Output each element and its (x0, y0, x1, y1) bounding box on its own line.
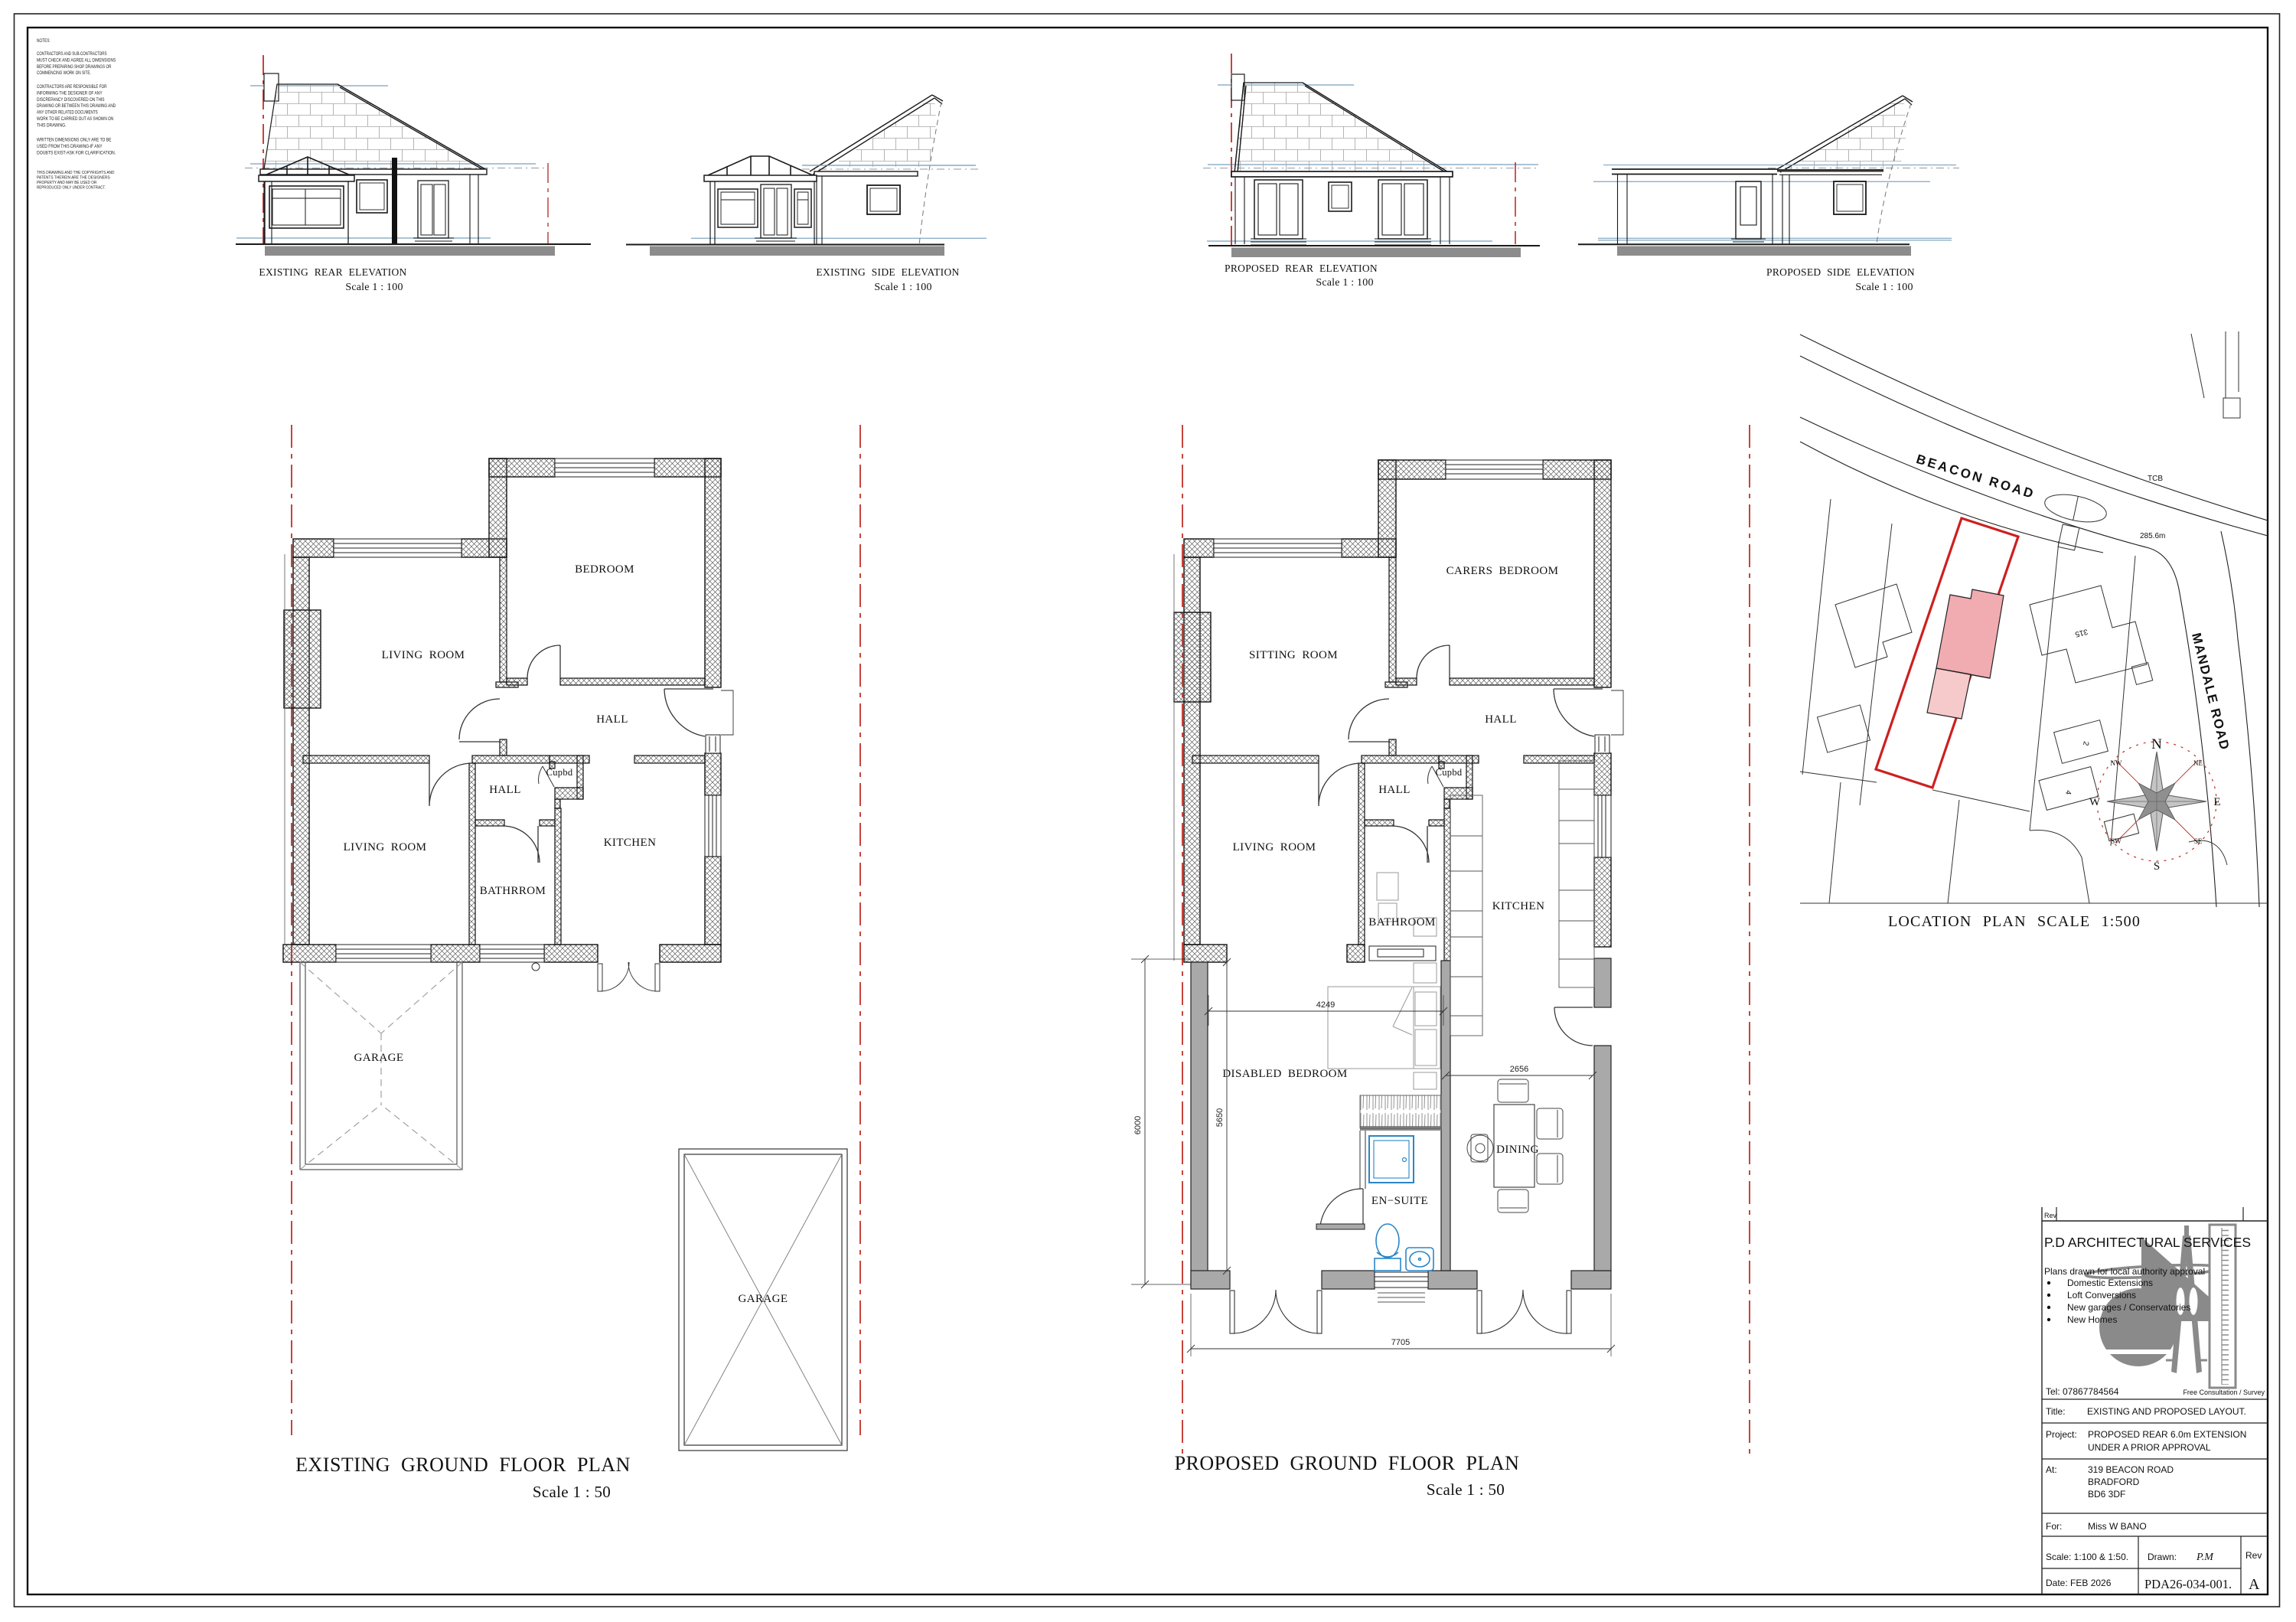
svg-text:Tel: 07867784564: Tel: 07867784564 (2046, 1386, 2119, 1397)
svg-text:PROPERTY AND MAY BE USED OR: PROPERTY AND MAY BE USED OR (37, 181, 97, 185)
svg-text:WORK TO BE CARRIED OUT AS SHOW: WORK TO BE CARRIED OUT AS SHOWN ON (37, 116, 113, 122)
svg-text:4249: 4249 (1316, 1000, 1335, 1010)
svg-text:Project:: Project: (2046, 1429, 2077, 1440)
svg-text:Date: FEB 2026: Date: FEB 2026 (2046, 1578, 2112, 1588)
svg-text:DINING: DINING (1496, 1144, 1539, 1156)
svg-text:Domestic Extensions: Domestic Extensions (2067, 1278, 2153, 1288)
svg-text:2656: 2656 (1510, 1065, 1528, 1074)
svg-text:THIS DRAWING AND THE COPYRIGHT: THIS DRAWING AND THE COPYRIGHTS AND (37, 171, 115, 175)
svg-text:DISABLED BEDROOM: DISABLED BEDROOM (1222, 1068, 1347, 1080)
svg-text:COMMENCING WORK ON SITE.: COMMENCING WORK ON SITE. (37, 70, 91, 76)
svg-text:HALL: HALL (596, 713, 628, 726)
svg-text:W: W (2089, 796, 2101, 808)
svg-text:BEFORE PREPARING SHOP DRAWINGS: BEFORE PREPARING SHOP DRAWINGS OR (37, 64, 112, 70)
svg-text:PROPOSED GROUND FLOOR PLAN: PROPOSED GROUND FLOOR PLAN (1175, 1452, 1520, 1474)
svg-text:EXISTING SIDE ELEVATION: EXISTING SIDE ELEVATION (816, 266, 959, 278)
svg-text:CONTRACTORS ARE RESPONSIBLE FO: CONTRACTORS ARE RESPONSIBLE FOR (37, 84, 107, 90)
svg-text:GARAGE: GARAGE (739, 1293, 788, 1305)
svg-text:Rev: Rev (2044, 1212, 2057, 1219)
svg-text:GARAGE: GARAGE (354, 1052, 404, 1064)
svg-text:For:: For: (2046, 1521, 2062, 1532)
svg-text:Drawn:: Drawn: (2148, 1552, 2177, 1562)
svg-text:Scale 1 : 50: Scale 1 : 50 (1427, 1480, 1505, 1499)
svg-text:SE: SE (2194, 837, 2203, 845)
svg-text:Title:: Title: (2046, 1406, 2066, 1417)
svg-text:UNDER A PRIOR APPROVAL: UNDER A PRIOR APPROVAL (2088, 1442, 2211, 1453)
svg-text:CONTRACTORS AND SUB-CONTRACTOR: CONTRACTORS AND SUB-CONTRACTORS (37, 51, 107, 57)
svg-text:HALL: HALL (1485, 713, 1517, 726)
svg-text:USED FROM THIS DRAWING-IF ANY: USED FROM THIS DRAWING-IF ANY (37, 144, 103, 149)
svg-text:6000: 6000 (1133, 1116, 1143, 1134)
svg-text:Free Consultation / Survey: Free Consultation / Survey (2183, 1389, 2265, 1396)
svg-text:Scale 1 : 100: Scale 1 : 100 (345, 282, 403, 293)
svg-text:MUST CHECK AND AGREE ALL DIMEN: MUST CHECK AND AGREE ALL DIMENSIONS (37, 57, 116, 63)
svg-text:N: N (2151, 736, 2162, 752)
svg-text:Cupbd: Cupbd (1436, 767, 1463, 778)
svg-text:PATENTS THEREIN ARE THE DESIGN: PATENTS THEREIN ARE THE DESIGNERS (37, 176, 110, 181)
svg-text:NOTES:: NOTES: (37, 38, 51, 44)
svg-text:PROPOSED REAR ELEVATION: PROPOSED REAR ELEVATION (1225, 263, 1378, 274)
svg-text:NW: NW (2111, 759, 2122, 767)
svg-text:7705: 7705 (1391, 1338, 1410, 1347)
svg-text:Cupbd: Cupbd (546, 767, 573, 778)
svg-text:CARERS BEDROOM: CARERS BEDROOM (1446, 565, 1559, 577)
svg-text:DISCREPANCY DISCOVERED ON THIS: DISCREPANCY DISCOVERED ON THIS (37, 97, 105, 103)
svg-text:PROPOSED REAR 6.0m EXTENSION: PROPOSED REAR 6.0m EXTENSION (2088, 1429, 2246, 1440)
svg-text:Plans drawn for local authorit: Plans drawn for local authority approval (2044, 1266, 2205, 1277)
svg-text:LIVING ROOM: LIVING ROOM (1233, 841, 1316, 853)
svg-text:319 BEACON ROAD: 319 BEACON ROAD (2088, 1464, 2174, 1475)
svg-text:PDA26-034-001.: PDA26-034-001. (2144, 1577, 2232, 1591)
svg-text:THIS DRAWING.: THIS DRAWING. (37, 122, 67, 128)
svg-text:BATHRROM: BATHRROM (480, 885, 546, 897)
svg-text:KITCHEN: KITCHEN (604, 837, 657, 849)
svg-text:Scale 1 : 100: Scale 1 : 100 (874, 282, 931, 293)
svg-text:EXISTING GROUND FLOOR PLAN: EXISTING GROUND FLOOR PLAN (295, 1454, 631, 1476)
svg-text:SITTING ROOM: SITTING ROOM (1249, 649, 1338, 661)
svg-text:Loft Conversions: Loft Conversions (2067, 1290, 2136, 1301)
svg-text:BEDROOM: BEDROOM (575, 563, 634, 576)
svg-text:EXISTING AND PROPOSED LAYOUT.: EXISTING AND PROPOSED LAYOUT. (2087, 1406, 2246, 1417)
svg-text:ANY OTHER RELATED DOCUMENTS: ANY OTHER RELATED DOCUMENTS (37, 110, 98, 116)
svg-text:EXISTING REAR ELEVATION: EXISTING REAR ELEVATION (259, 266, 406, 278)
svg-text:A: A (2249, 1576, 2260, 1593)
svg-text:LIVING ROOM: LIVING ROOM (382, 649, 465, 661)
svg-text:BRADFORD: BRADFORD (2088, 1477, 2140, 1487)
svg-text:E: E (2213, 796, 2220, 808)
svg-text:PROPOSED SIDE ELEVATION: PROPOSED SIDE ELEVATION (1766, 266, 1915, 278)
svg-text:DRAWING OR BETWEEN THIS DRAWIN: DRAWING OR BETWEEN THIS DRAWING AND (37, 103, 116, 109)
svg-text:DOUBTS EXIST-ASK FOR CLARIFICA: DOUBTS EXIST-ASK FOR CLARIFICATION. (37, 150, 116, 155)
svg-text:285.6m: 285.6m (2140, 532, 2165, 540)
svg-text:HALL: HALL (489, 784, 521, 796)
svg-text:Scale 1 : 50: Scale 1 : 50 (533, 1483, 611, 1501)
svg-text:BD6 3DF: BD6 3DF (2088, 1489, 2125, 1500)
svg-text:Scale: 1:100 & 1:50.: Scale: 1:100 & 1:50. (2046, 1552, 2128, 1562)
svg-text:INFORMING THE DESIGNER OF ANY: INFORMING THE DESIGNER OF ANY (37, 90, 103, 96)
svg-text:EN−SUITE: EN−SUITE (1371, 1195, 1428, 1207)
svg-text:TCB: TCB (2148, 475, 2163, 483)
svg-text:At:: At: (2046, 1464, 2057, 1475)
svg-text:SW: SW (2111, 837, 2122, 845)
svg-text:KITCHEN: KITCHEN (1492, 900, 1545, 912)
svg-text:HALL: HALL (1378, 784, 1411, 796)
svg-text:Scale 1 : 100: Scale 1 : 100 (1316, 277, 1373, 289)
svg-text:WRITTEN DIMENSIONS ONLY ARE TO: WRITTEN DIMENSIONS ONLY ARE TO BE (37, 138, 111, 143)
svg-text:P.M: P.M (2196, 1552, 2214, 1563)
svg-text:P.D ARCHITECTURAL SERVICES: P.D ARCHITECTURAL SERVICES (2044, 1235, 2251, 1250)
svg-text:New garages / Conservatories: New garages / Conservatories (2067, 1302, 2190, 1313)
svg-text:Rev: Rev (2245, 1550, 2262, 1561)
svg-text:5650: 5650 (1215, 1108, 1225, 1127)
svg-text:New Homes: New Homes (2067, 1314, 2117, 1325)
svg-text:REPRODUCED ONLY UNDER CONTRACT: REPRODUCED ONLY UNDER CONTRACT. (37, 186, 106, 191)
svg-text:LIVING ROOM: LIVING ROOM (344, 841, 427, 853)
svg-text:Miss W BANO: Miss W BANO (2088, 1521, 2147, 1532)
svg-text:NE: NE (2193, 759, 2203, 767)
svg-text:LOCATION PLAN SCALE 1:50: LOCATION PLAN SCALE 1:500 (1888, 913, 2141, 930)
svg-text:Scale 1 : 100: Scale 1 : 100 (1855, 282, 1913, 293)
svg-text:BATHROOM: BATHROOM (1368, 916, 1435, 928)
svg-text:S: S (2154, 860, 2160, 873)
